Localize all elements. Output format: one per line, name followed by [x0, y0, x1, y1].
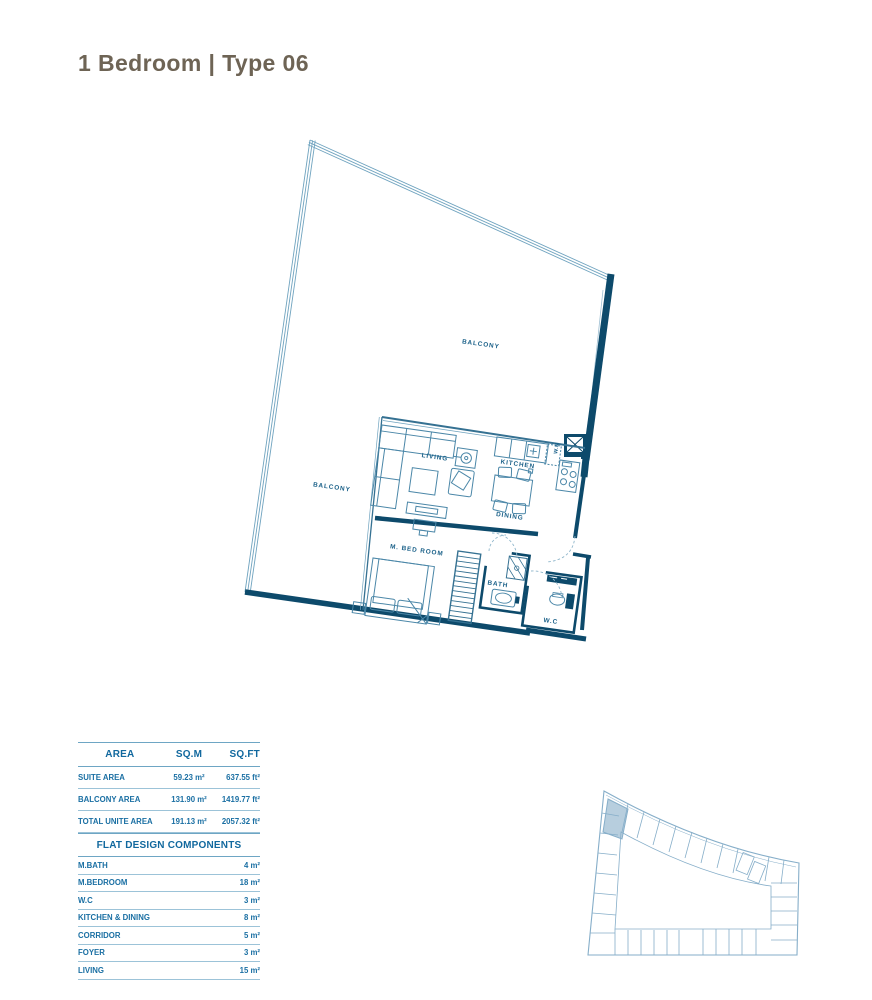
balcony-left-label: BALCONY [313, 481, 352, 493]
page-title: 1 Bedroom | Type 06 [78, 50, 309, 77]
row-label: M.BATH [78, 861, 108, 870]
row-value: 3 m² [244, 896, 260, 905]
table-row: M.BEDROOM 18 m² [78, 875, 260, 893]
floor-plan-drawing: LIVING W.M KITCHEN DINING [230, 130, 650, 750]
row-label: FOYER [78, 948, 105, 957]
table-row: W.C 3 m² [78, 892, 260, 910]
row-value: 5 m² [244, 931, 260, 940]
table-row: KITCHEN & DINING 8 m² [78, 910, 260, 928]
row-label: CORRIDOR [78, 931, 120, 940]
floor-plan: LIVING W.M KITCHEN DINING [230, 130, 650, 750]
row-value: 8 m² [244, 913, 260, 922]
bedroom-label: M. BED ROOM [390, 543, 444, 557]
row-label: M.BEDROOM [78, 878, 127, 887]
table-row: LIVING 15 m² [78, 962, 260, 980]
stove [556, 460, 580, 492]
row-sqft: 2057.32 ft² [216, 817, 260, 826]
row-value: 18 m² [240, 878, 260, 887]
living-label: LIVING [421, 452, 448, 463]
components-table-title: FLAT DESIGN COMPONENTS [78, 833, 260, 857]
table-row: M.BATH 4 m² [78, 857, 260, 875]
bath-label: BATH [487, 580, 509, 590]
table-row: BALCONY AREA 131.90 m² 1419.77 ft² [78, 789, 260, 811]
table-row: FOYER 3 m² [78, 945, 260, 963]
balcony-top-label: BALCONY [462, 338, 501, 350]
row-value: 3 m² [244, 948, 260, 957]
key-plan-drawing [575, 783, 827, 965]
area-table: AREA SQ.M SQ.FT SUITE AREA 59.23 m² 637.… [78, 742, 260, 833]
row-value: 15 m² [240, 966, 260, 975]
row-value: 4 m² [244, 861, 260, 870]
row-label: BALCONY AREA [78, 795, 162, 804]
table-row: CORRIDOR 5 m² [78, 927, 260, 945]
brochure-page: { "title": "1 Bedroom | Type 06", "color… [0, 0, 872, 1000]
row-sqm: 59.23 m² [162, 773, 217, 782]
wardrobe [448, 551, 481, 624]
area-header-cell: AREA [78, 749, 162, 760]
row-sqft: 637.55 ft² [216, 773, 260, 782]
row-label: TOTAL UNITE AREA [78, 817, 162, 826]
row-sqm: 191.13 m² [162, 817, 217, 826]
sqm-header-cell: SQ.M [162, 749, 217, 760]
row-sqm: 131.90 m² [162, 795, 217, 804]
row-label: W.C [78, 896, 93, 905]
row-label: LIVING [78, 966, 104, 975]
row-label: SUITE AREA [78, 773, 162, 782]
sqft-header-cell: SQ.FT [216, 749, 260, 760]
building-key-plan [575, 783, 827, 965]
wc-label: W.C [543, 617, 559, 626]
washing-machine-label: W.M [553, 442, 561, 454]
row-sqft: 1419.77 ft² [216, 795, 260, 804]
components-table: FLAT DESIGN COMPONENTS M.BATH 4 m² M.BED… [78, 833, 260, 980]
table-row: SUITE AREA 59.23 m² 637.55 ft² [78, 767, 260, 789]
dining-set [490, 465, 534, 515]
row-label: KITCHEN & DINING [78, 913, 150, 922]
area-table-header: AREA SQ.M SQ.FT [78, 742, 260, 767]
table-row: TOTAL UNITE AREA 191.13 m² 2057.32 ft² [78, 811, 260, 833]
dining-label: DINING [496, 511, 524, 522]
